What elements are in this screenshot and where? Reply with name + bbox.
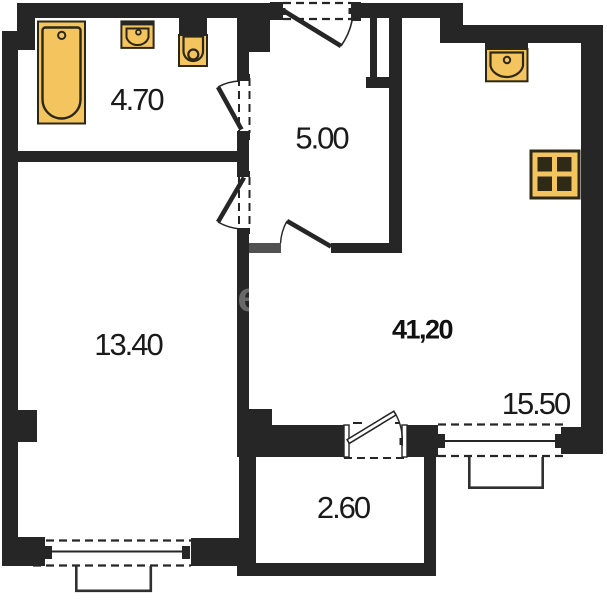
svg-text:13.40: 13.40 xyxy=(94,327,163,362)
svg-text:15.50: 15.50 xyxy=(502,386,571,421)
svg-text:41,20: 41,20 xyxy=(392,315,453,345)
svg-text:е: е xyxy=(237,273,260,320)
svg-text:5.00: 5.00 xyxy=(295,121,349,156)
svg-text:2.60: 2.60 xyxy=(317,490,371,525)
svg-text:4.70: 4.70 xyxy=(110,82,164,117)
